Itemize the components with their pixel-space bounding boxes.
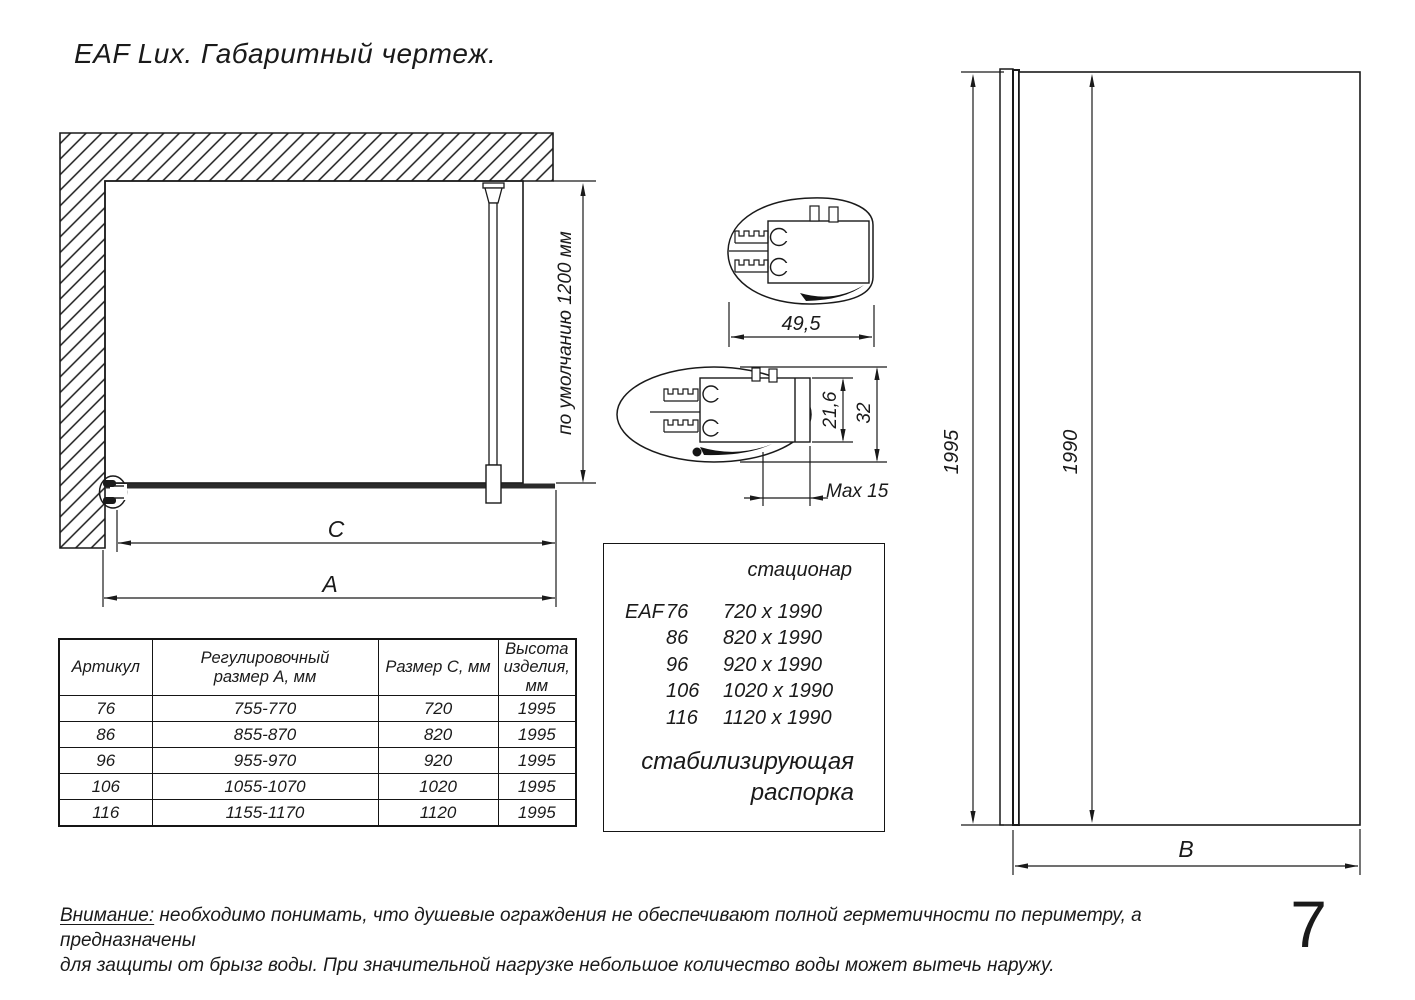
legend-series: EAF: [604, 601, 666, 624]
label-49-5: 49,5: [782, 313, 822, 335]
legend-footer: стабилизирующая распорка: [604, 746, 884, 808]
col-header-height: Высота изделия, мм: [498, 639, 576, 696]
label-32: 32: [854, 402, 875, 424]
label-21-6: 21,6: [820, 391, 841, 429]
legend-row: 86 820 x 1990: [604, 626, 884, 653]
warning-prefix: Внимание:: [60, 905, 154, 926]
dimension-drawing: C A по умолчанию 1200 мм 49,5 21,6 32 Ma…: [0, 0, 1415, 1000]
legend-row: 106 1020 x 1990: [604, 679, 884, 706]
wall-profile-strip: [1000, 69, 1013, 825]
legend-row: 96 920 x 1990: [604, 652, 884, 679]
table-row: 86855-8708201995: [59, 722, 576, 748]
table-row: 96955-9709201995: [59, 748, 576, 774]
legend-footer-line1: стабилизирующая: [604, 746, 854, 777]
legend-row: 116 1120 x 1990: [604, 705, 884, 732]
glass-panel-front: [105, 181, 523, 483]
label-1995: 1995: [941, 429, 963, 474]
side-view: [961, 69, 1360, 875]
legend-footer-line2: распорка: [604, 777, 854, 808]
label-dim-b: B: [1178, 836, 1193, 862]
col-header-article: Артикул: [59, 639, 152, 696]
col-header-size-a: Регулировочный размер А, мм: [152, 639, 378, 696]
label-1990: 1990: [1060, 430, 1082, 475]
page-number: 7: [1290, 886, 1327, 962]
warning-note: Внимание: необходимо понимать, что душев…: [60, 903, 1270, 978]
size-table: Артикул Регулировочный размер А, мм Разм…: [58, 638, 577, 827]
dim-1995: [961, 72, 1004, 825]
drawing-page: C A по умолчанию 1200 мм 49,5 21,6 32 Ma…: [0, 0, 1415, 1000]
legend-row: EAF 76 720 x 1990: [604, 599, 884, 626]
table-header-row: Артикул Регулировочный размер А, мм Разм…: [59, 639, 576, 696]
legend-header: стационар: [604, 559, 884, 582]
table-row: 1061055-107010201995: [59, 774, 576, 800]
warning-note-line1: Внимание: необходимо понимать, что душев…: [60, 903, 1270, 953]
legend-rows: EAF 76 720 x 1990 86 820 x 1990 96 920 x…: [604, 599, 884, 732]
model-legend-box: стационар EAF 76 720 x 1990 86 820 x 199…: [603, 543, 885, 832]
col-header-size-c: Размер С, мм: [378, 639, 498, 696]
dim-default-height: [580, 183, 585, 483]
label-default-height: по умолчанию 1200 мм: [555, 231, 576, 435]
page-title: EAF Lux. Габаритный чертеж.: [74, 38, 496, 70]
glass-edge-strip: [1013, 70, 1019, 825]
warning-note-line2: для защиты от брызг воды. При значительн…: [60, 953, 1270, 978]
label-dim-a: A: [320, 571, 337, 597]
table-row: 1161155-117011201995: [59, 800, 576, 827]
label-dim-c: C: [328, 516, 345, 542]
label-max-15: Max 15: [826, 481, 889, 502]
table-row: 76755-7707201995: [59, 696, 576, 722]
